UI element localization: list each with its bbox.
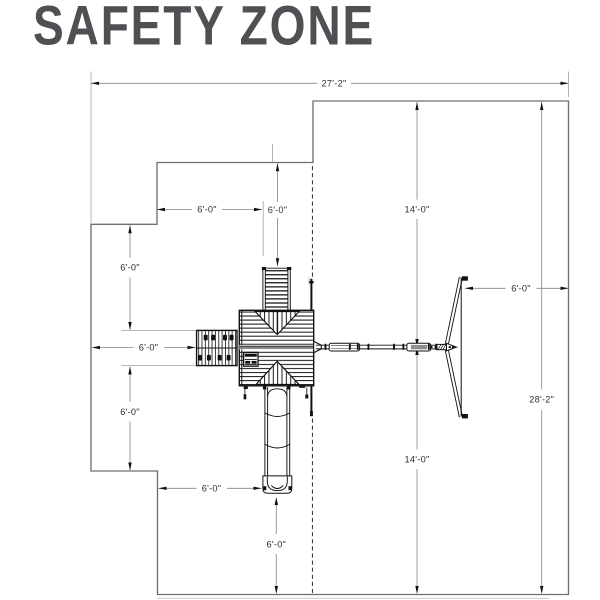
svg-text:6'-0": 6'-0"	[268, 205, 288, 215]
svg-text:6'-0": 6'-0"	[202, 483, 222, 493]
svg-text:6'-0": 6'-0"	[511, 283, 531, 293]
svg-text:27'-2": 27'-2"	[322, 78, 347, 88]
svg-text:28'-2": 28'-2"	[529, 395, 554, 405]
svg-text:6'-0": 6'-0"	[120, 407, 140, 417]
svg-text:SAFETY ZONE: SAFETY ZONE	[33, 0, 375, 57]
svg-text:6'-0": 6'-0"	[197, 205, 217, 215]
svg-text:14'-0": 14'-0"	[405, 454, 430, 464]
svg-text:6'-0": 6'-0"	[139, 343, 159, 353]
svg-text:6'-0": 6'-0"	[120, 263, 140, 273]
svg-text:14'-0": 14'-0"	[405, 204, 430, 214]
svg-text:6'-0": 6'-0"	[267, 540, 287, 550]
